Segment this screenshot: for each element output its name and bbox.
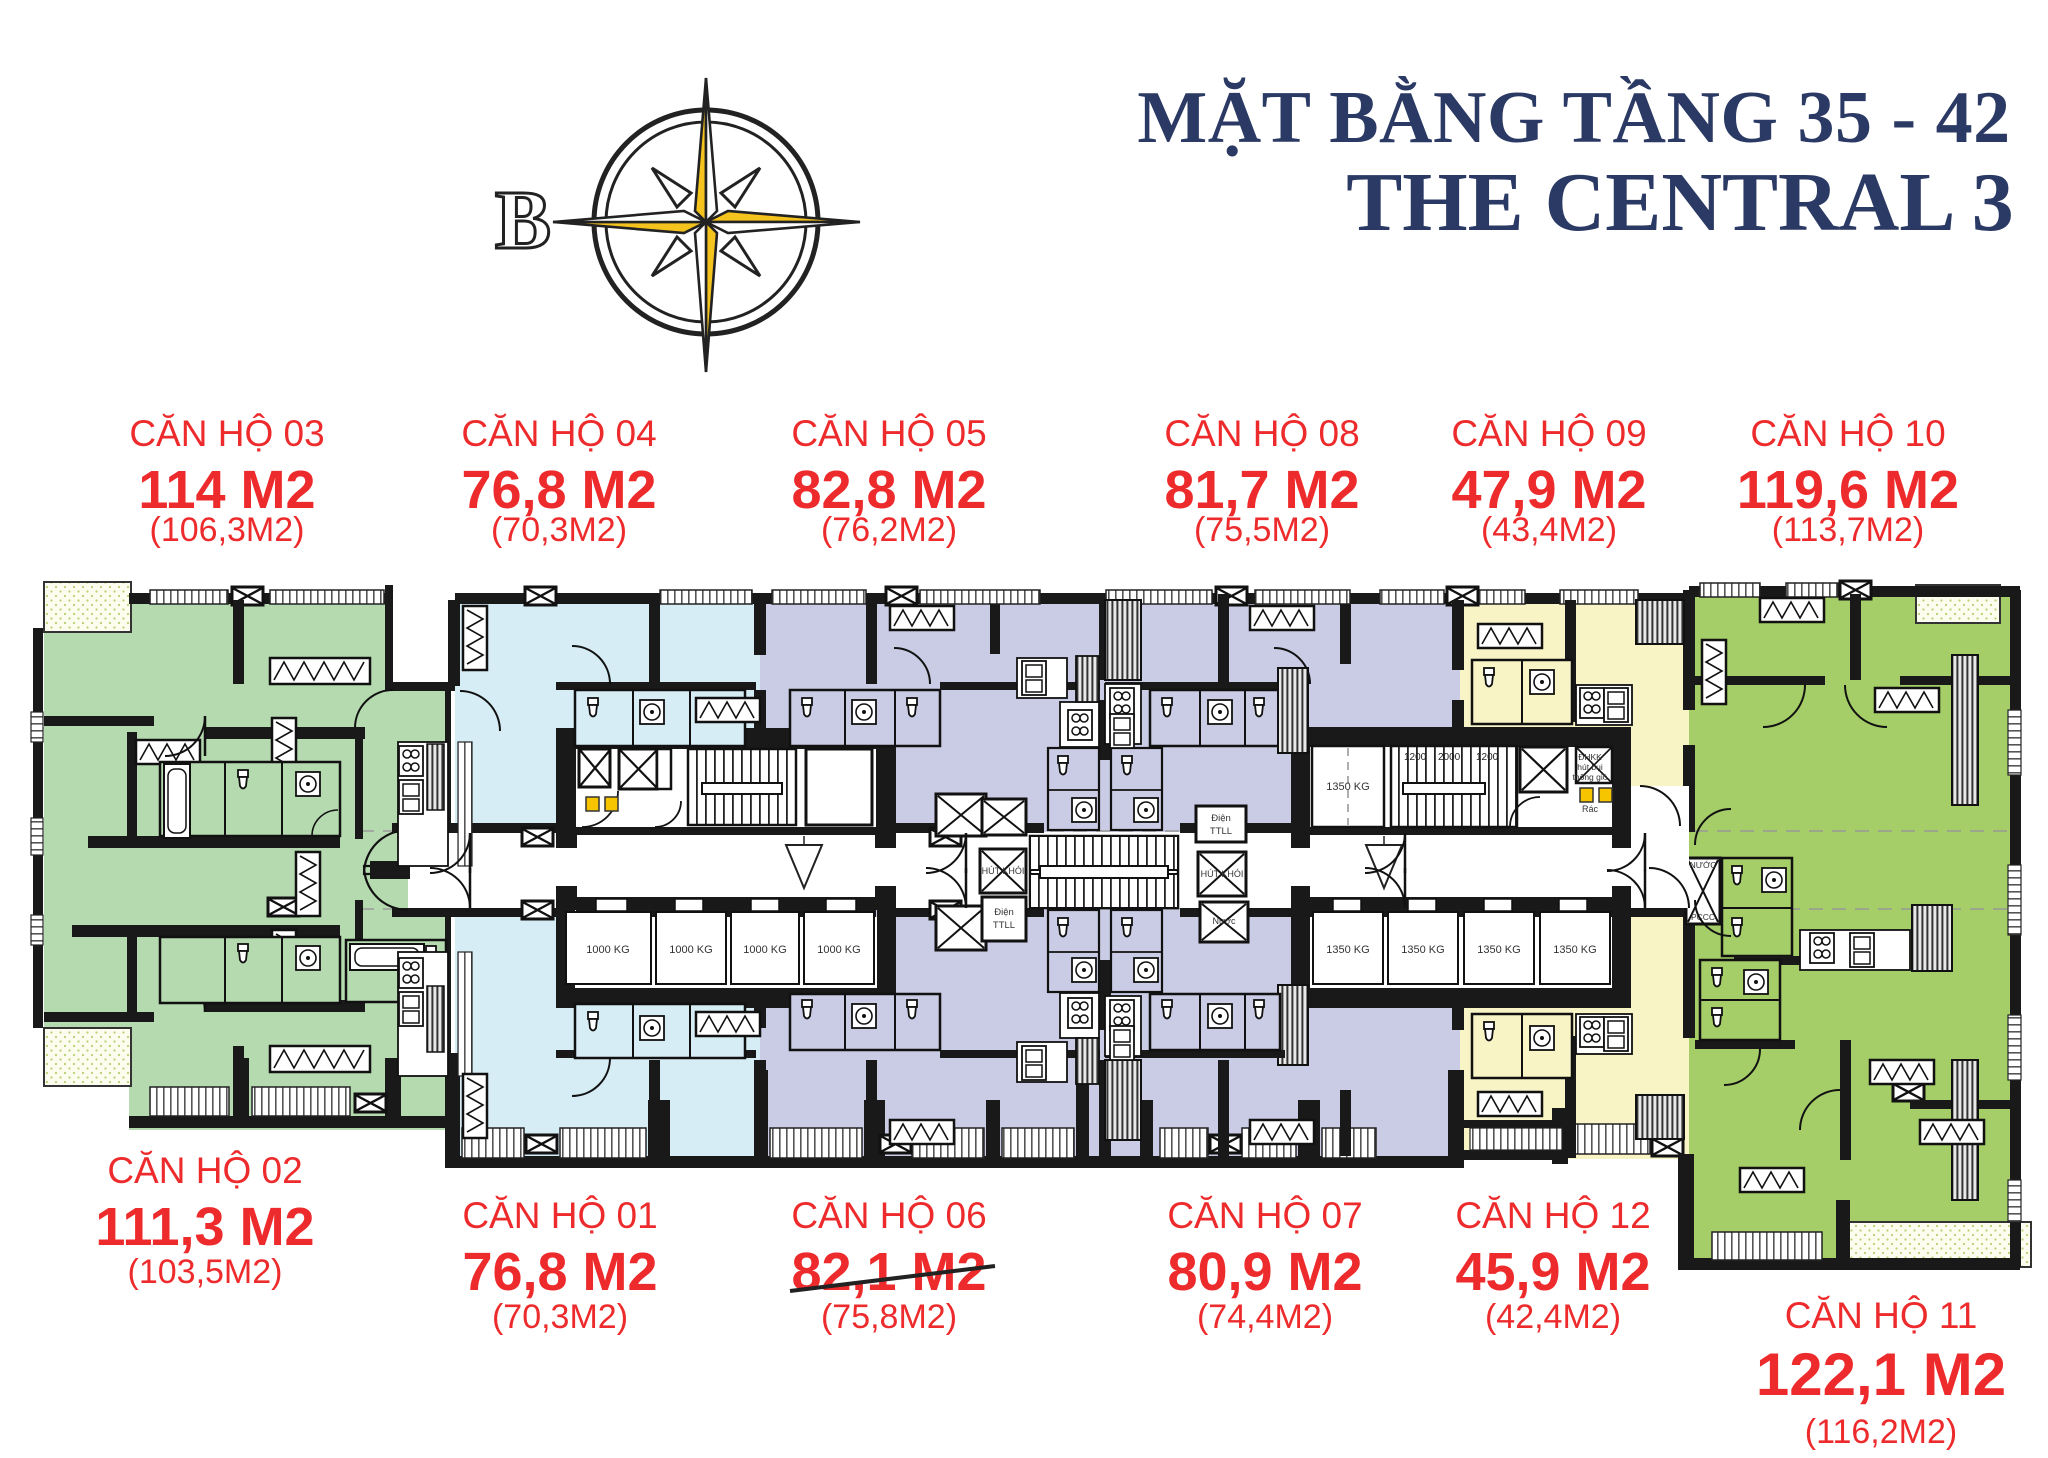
- svg-text:2000: 2000: [1438, 752, 1461, 763]
- svg-text:ĐHKK: ĐHKK: [1578, 752, 1602, 762]
- svg-text:111,3 M2: 111,3 M2: [95, 1197, 314, 1257]
- svg-text:CĂN HỘ 09: CĂN HỘ 09: [1451, 413, 1646, 454]
- svg-text:(75,8M2): (75,8M2): [821, 1298, 957, 1336]
- svg-text:(70,3M2): (70,3M2): [491, 511, 627, 549]
- svg-text:B: B: [495, 174, 551, 267]
- svg-text:1000 KG: 1000 KG: [669, 944, 712, 956]
- svg-text:CĂN HỘ 05: CĂN HỘ 05: [791, 413, 986, 454]
- svg-text:(75,5M2): (75,5M2): [1194, 511, 1330, 549]
- svg-text:1350 KG: 1350 KG: [1477, 944, 1520, 956]
- svg-text:(103,5M2): (103,5M2): [128, 1253, 283, 1291]
- svg-text:(76,2M2): (76,2M2): [821, 511, 957, 549]
- svg-text:CĂN HỘ 08: CĂN HỘ 08: [1164, 413, 1359, 454]
- svg-text:TTLL: TTLL: [1210, 826, 1232, 837]
- svg-text:1200: 1200: [1404, 752, 1427, 763]
- svg-text:1200: 1200: [1476, 752, 1499, 763]
- svg-text:NƯỚC: NƯỚC: [1690, 860, 1717, 870]
- svg-text:Nước: Nước: [1213, 916, 1236, 926]
- svg-text:1350 KG: 1350 KG: [1401, 944, 1444, 956]
- svg-text:45,9 M2: 45,9 M2: [1455, 1242, 1650, 1302]
- svg-text:CĂN HỘ 02: CĂN HỘ 02: [107, 1150, 302, 1191]
- svg-text:THE CENTRAL 3: THE CENTRAL 3: [1346, 156, 2014, 249]
- svg-text:(116,2M2): (116,2M2): [1805, 1413, 1957, 1451]
- svg-text:CĂN HỘ 03: CĂN HỘ 03: [129, 413, 324, 454]
- svg-text:CĂN HỘ 07: CĂN HỘ 07: [1167, 1195, 1362, 1236]
- svg-text:Rác: Rác: [1582, 804, 1599, 814]
- svg-text:CĂN HỘ 04: CĂN HỘ 04: [461, 413, 656, 454]
- svg-text:80,9 M2: 80,9 M2: [1167, 1242, 1362, 1302]
- svg-text:1350 KG: 1350 KG: [1553, 944, 1596, 956]
- svg-text:hút bụi: hút bụi: [1577, 762, 1603, 772]
- svg-text:CĂN HỘ 12: CĂN HỘ 12: [1455, 1195, 1650, 1236]
- svg-text:MẶT BẰNG TẦNG 35 - 42: MẶT BẰNG TẦNG 35 - 42: [1137, 76, 2010, 159]
- svg-text:TTLL: TTLL: [993, 920, 1015, 931]
- svg-text:1000 KG: 1000 KG: [743, 944, 786, 956]
- svg-text:HÚT KHÓI: HÚT KHÓI: [982, 866, 1025, 876]
- svg-text:CĂN HỘ 01: CĂN HỘ 01: [462, 1195, 657, 1236]
- svg-text:CĂN HỘ 10: CĂN HỘ 10: [1750, 413, 1945, 454]
- svg-text:1350 KG: 1350 KG: [1326, 944, 1369, 956]
- svg-text:PCCC: PCCC: [1691, 912, 1715, 922]
- svg-text:CĂN HỘ 06: CĂN HỘ 06: [791, 1195, 986, 1236]
- svg-text:Điện: Điện: [1211, 813, 1231, 824]
- svg-text:Điện: Điện: [994, 907, 1014, 918]
- svg-text:(74,4M2): (74,4M2): [1197, 1298, 1333, 1336]
- svg-text:HÚT KHÓI: HÚT KHÓI: [1201, 869, 1244, 879]
- svg-text:(43,4M2): (43,4M2): [1481, 511, 1617, 549]
- svg-text:122,1 M2: 122,1 M2: [1756, 1341, 2006, 1408]
- svg-text:(113,7M2): (113,7M2): [1772, 511, 1924, 549]
- svg-text:thông gió: thông gió: [1573, 772, 1608, 782]
- svg-text:(42,4M2): (42,4M2): [1485, 1298, 1621, 1336]
- svg-text:(70,3M2): (70,3M2): [492, 1298, 628, 1336]
- svg-text:1000 KG: 1000 KG: [817, 944, 860, 956]
- svg-text:CĂN HỘ 11: CĂN HỘ 11: [1785, 1295, 1978, 1336]
- svg-text:1000 KG: 1000 KG: [586, 944, 629, 956]
- svg-text:76,8 M2: 76,8 M2: [462, 1242, 657, 1302]
- svg-text:(106,3M2): (106,3M2): [150, 511, 305, 549]
- svg-text:1350 KG: 1350 KG: [1326, 781, 1369, 793]
